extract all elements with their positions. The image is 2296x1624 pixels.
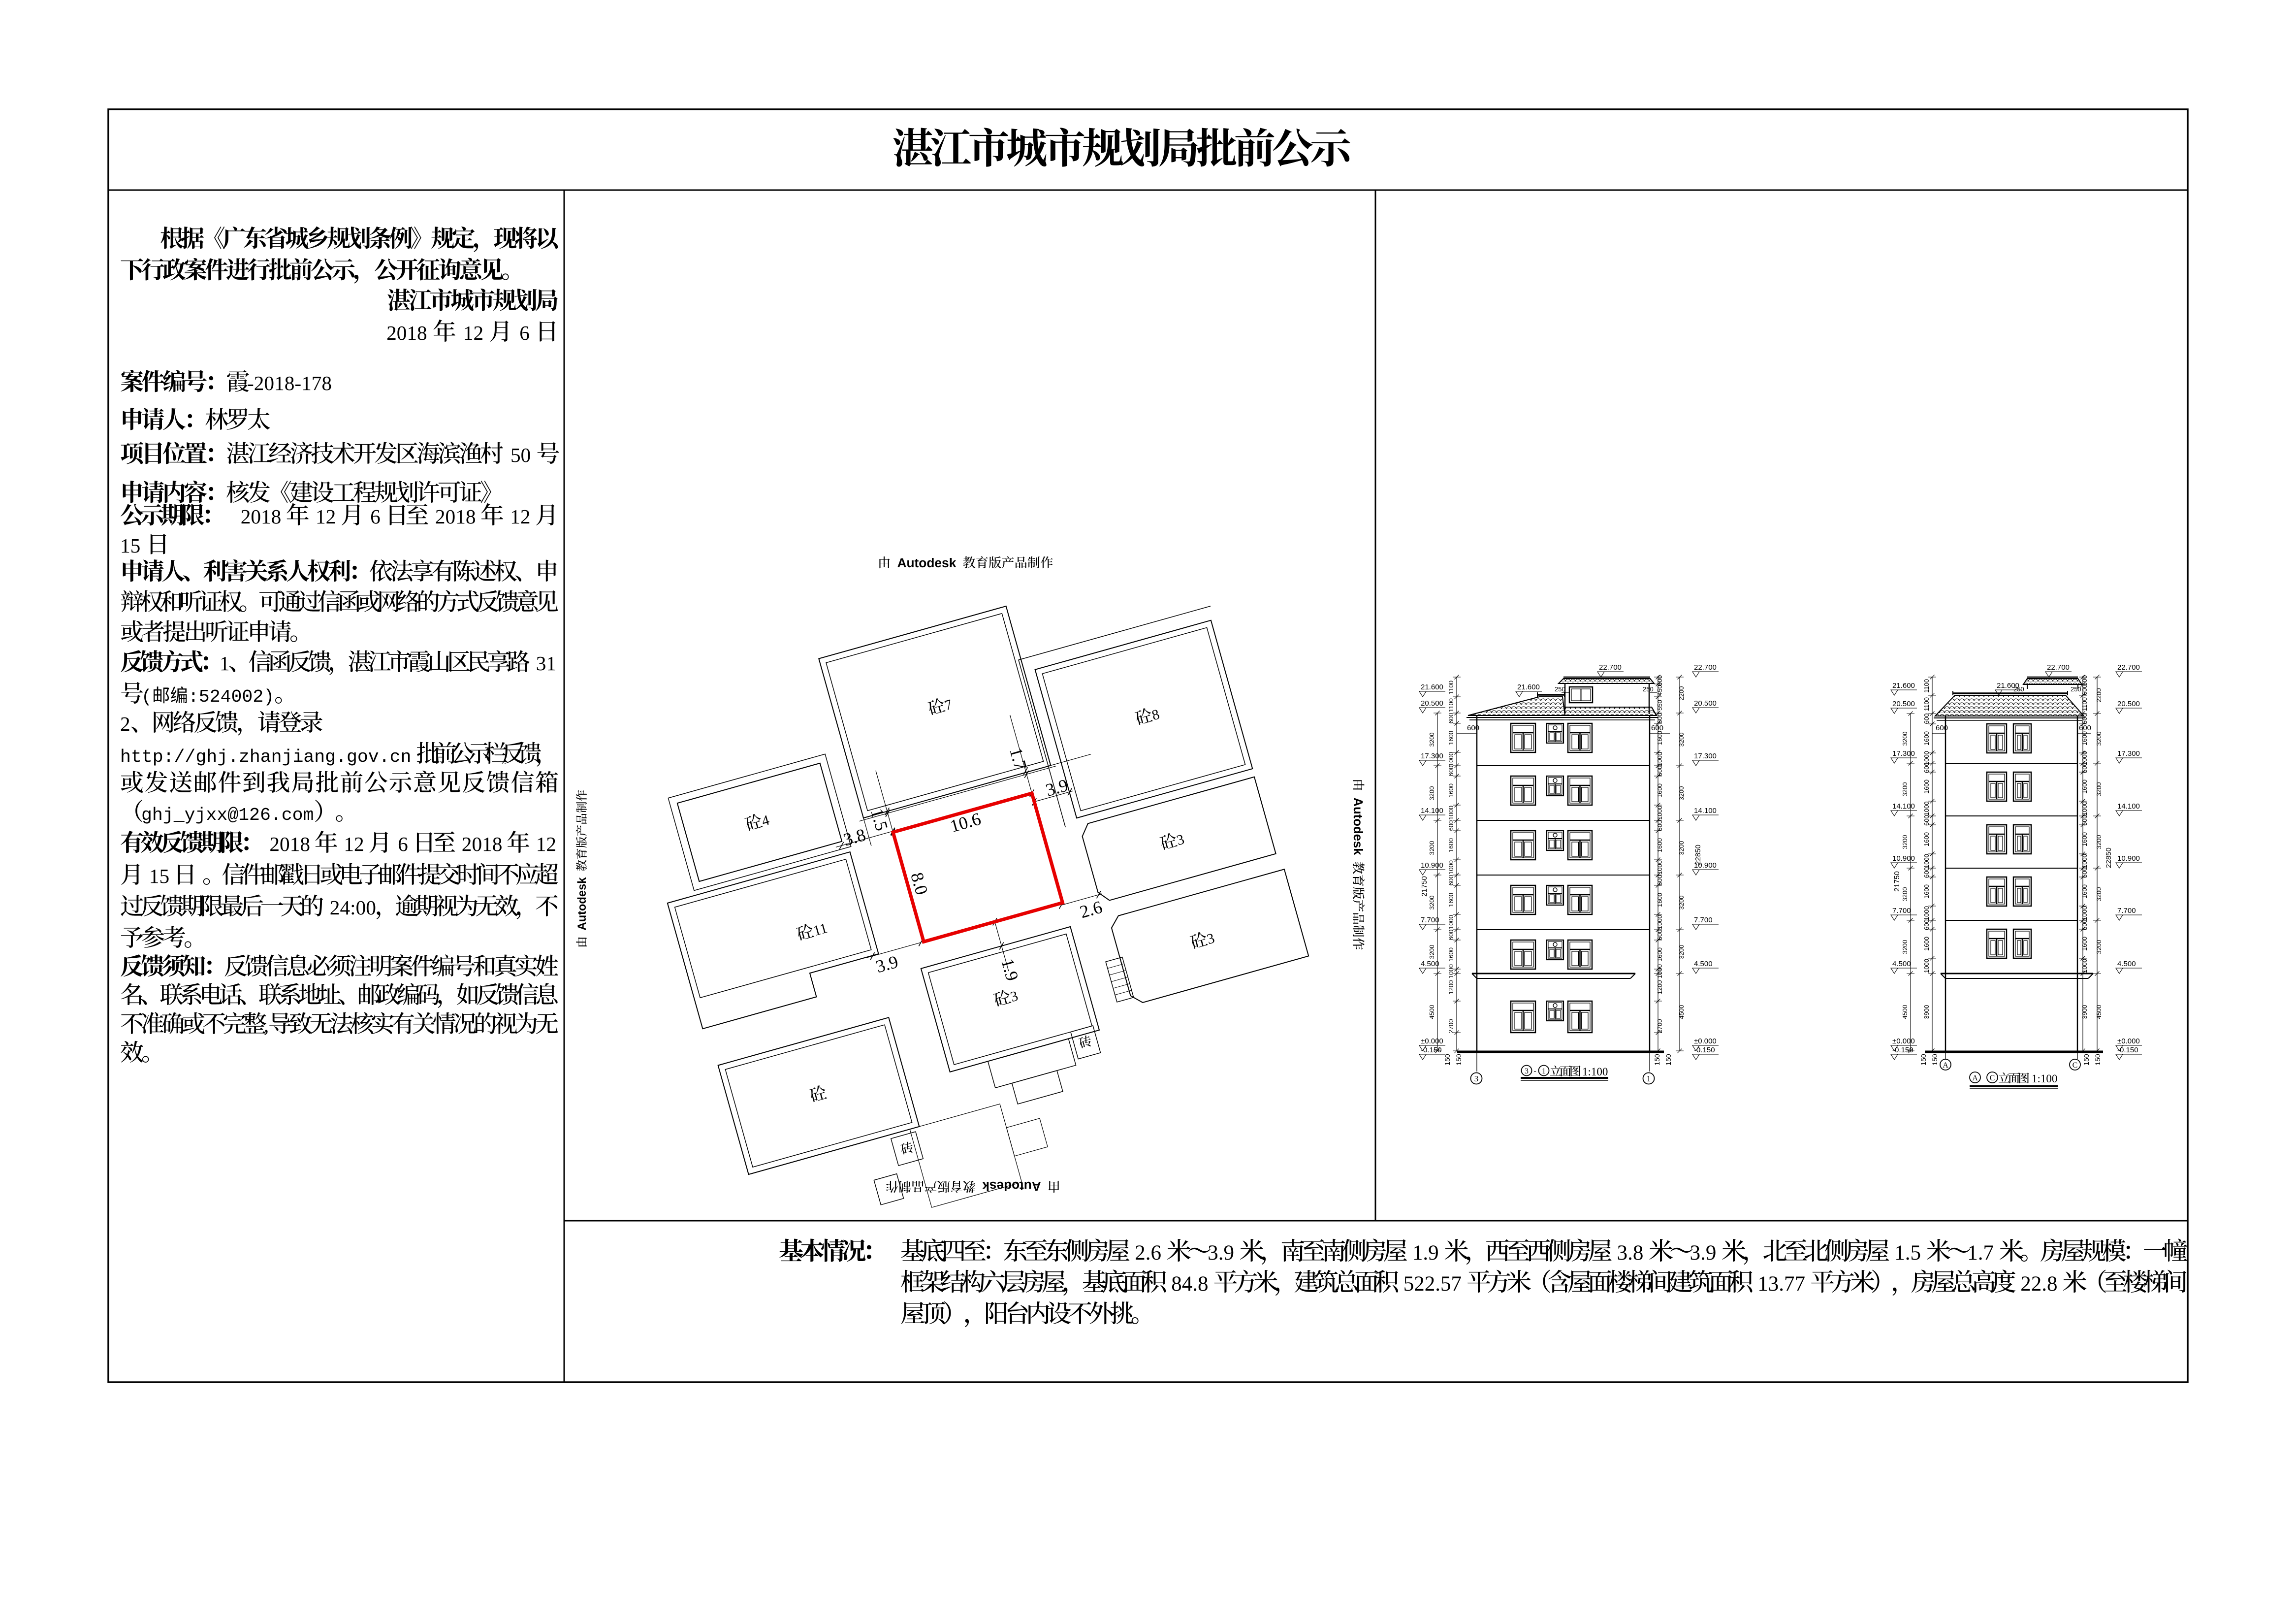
svg-text:24:00: 24:00 bbox=[330, 896, 376, 919]
svg-text:17.300: 17.300 bbox=[2117, 749, 2140, 758]
svg-text:3200: 3200 bbox=[1901, 835, 1909, 849]
svg-text:1600: 1600 bbox=[2081, 832, 2088, 846]
svg-text:3.9: 3.9 bbox=[1208, 1241, 1234, 1265]
svg-text:3200: 3200 bbox=[2095, 940, 2103, 954]
svg-text:1600: 1600 bbox=[1447, 893, 1455, 907]
svg-text:3200: 3200 bbox=[1901, 732, 1909, 746]
svg-text:600: 600 bbox=[1936, 724, 1948, 732]
svg-text:7.700: 7.700 bbox=[1421, 916, 1439, 924]
svg-text:250: 250 bbox=[1643, 685, 1654, 693]
svg-text:12: 12 bbox=[536, 833, 556, 855]
svg-text:21.600: 21.600 bbox=[1997, 682, 2019, 690]
svg-text:3200: 3200 bbox=[1428, 733, 1435, 747]
svg-text:600: 600 bbox=[1656, 930, 1663, 941]
svg-text:4500: 4500 bbox=[1428, 1005, 1435, 1019]
svg-text:600: 600 bbox=[2081, 714, 2088, 724]
svg-text:1100: 1100 bbox=[1447, 681, 1455, 694]
svg-text:14.100: 14.100 bbox=[1421, 807, 1443, 815]
svg-text:1600: 1600 bbox=[1923, 731, 1930, 746]
svg-text:600: 600 bbox=[1447, 766, 1455, 777]
svg-text:7.700: 7.700 bbox=[1694, 916, 1713, 924]
svg-text:522.57: 522.57 bbox=[1403, 1272, 1462, 1296]
svg-text:3200: 3200 bbox=[2095, 887, 2103, 902]
svg-text:3900: 3900 bbox=[2081, 1005, 2088, 1019]
svg-text:3200: 3200 bbox=[2095, 732, 2103, 746]
svg-text:600: 600 bbox=[1447, 713, 1455, 724]
svg-text:22850: 22850 bbox=[1694, 844, 1702, 865]
svg-text:Autodesk: Autodesk bbox=[982, 1179, 1041, 1194]
svg-text:3200: 3200 bbox=[1901, 887, 1909, 902]
svg-text:C: C bbox=[1990, 1074, 1995, 1082]
svg-text:1600: 1600 bbox=[1447, 838, 1455, 852]
svg-text:17.300: 17.300 bbox=[1421, 752, 1443, 760]
svg-text:±0.000: ±0.000 bbox=[1694, 1037, 1717, 1045]
svg-text:1600: 1600 bbox=[1447, 947, 1455, 962]
svg-text:2200: 2200 bbox=[1678, 686, 1685, 701]
svg-text:250: 250 bbox=[1555, 685, 1565, 693]
svg-text:-: - bbox=[1533, 1067, 1536, 1075]
svg-text:22.700: 22.700 bbox=[1694, 663, 1717, 672]
svg-text:1: 1 bbox=[1647, 1074, 1651, 1083]
svg-text:21.600: 21.600 bbox=[1517, 683, 1540, 691]
svg-text:1000: 1000 bbox=[1923, 959, 1930, 973]
svg-text:14.100: 14.100 bbox=[2117, 802, 2140, 811]
svg-text:3.9: 3.9 bbox=[1690, 1241, 1717, 1265]
svg-text:20.500: 20.500 bbox=[2117, 700, 2140, 708]
svg-text:1000: 1000 bbox=[2081, 906, 2088, 920]
svg-text:1000: 1000 bbox=[1447, 915, 1455, 929]
svg-text:1000: 1000 bbox=[2081, 959, 2088, 973]
svg-text:1:100: 1:100 bbox=[1582, 1066, 1608, 1078]
svg-text:600: 600 bbox=[1651, 724, 1663, 732]
svg-text:1000: 1000 bbox=[1923, 802, 1930, 816]
svg-text:600: 600 bbox=[1447, 875, 1455, 886]
svg-text:1000: 1000 bbox=[1656, 752, 1663, 766]
svg-text:600: 600 bbox=[2081, 684, 2088, 695]
svg-text:1000: 1000 bbox=[1923, 854, 1930, 868]
svg-text:3900: 3900 bbox=[1923, 1005, 1930, 1019]
svg-text:600: 600 bbox=[2081, 815, 2088, 826]
svg-text:1600: 1600 bbox=[1447, 783, 1455, 798]
svg-text:±0.000: ±0.000 bbox=[2117, 1037, 2140, 1045]
svg-text:600: 600 bbox=[1923, 762, 1930, 773]
svg-text:1000: 1000 bbox=[1923, 906, 1930, 920]
svg-text:10.900: 10.900 bbox=[2117, 854, 2140, 863]
svg-text:17.300: 17.300 bbox=[1694, 752, 1717, 760]
svg-text:3: 3 bbox=[1525, 1067, 1529, 1075]
svg-text:22850: 22850 bbox=[2105, 847, 2113, 868]
svg-text:1200: 1200 bbox=[1447, 980, 1455, 995]
svg-text:20.500: 20.500 bbox=[1892, 700, 1915, 708]
svg-text:450: 450 bbox=[1656, 685, 1663, 696]
svg-text:3200: 3200 bbox=[1428, 841, 1435, 855]
svg-text:1000: 1000 bbox=[1656, 915, 1663, 929]
svg-text:http://ghj.zhanjiang.gov.cn: http://ghj.zhanjiang.gov.cn bbox=[120, 747, 411, 767]
svg-text:1000: 1000 bbox=[1447, 964, 1455, 978]
svg-text:12: 12 bbox=[463, 322, 483, 344]
svg-text:1100: 1100 bbox=[2081, 697, 2088, 711]
svg-text:22.700: 22.700 bbox=[2117, 663, 2140, 672]
svg-text:-0.150: -0.150 bbox=[2117, 1046, 2138, 1054]
svg-text:600: 600 bbox=[1923, 867, 1930, 878]
svg-text:4500: 4500 bbox=[1678, 1005, 1685, 1019]
svg-text:3200: 3200 bbox=[1428, 945, 1435, 959]
svg-text:150: 150 bbox=[2094, 1054, 2102, 1066]
svg-text:1000: 1000 bbox=[1656, 806, 1663, 820]
svg-text:3200: 3200 bbox=[2095, 782, 2103, 797]
svg-text:14.100: 14.100 bbox=[1694, 807, 1717, 815]
svg-text:1200: 1200 bbox=[1656, 980, 1663, 995]
svg-text:3200: 3200 bbox=[1678, 945, 1685, 959]
svg-text:1000: 1000 bbox=[1656, 964, 1663, 978]
svg-text:7.700: 7.700 bbox=[1892, 907, 1911, 915]
svg-text:1.5: 1.5 bbox=[1894, 1241, 1921, 1265]
svg-text:150: 150 bbox=[1653, 1054, 1661, 1066]
svg-text:150: 150 bbox=[2082, 1054, 2090, 1066]
svg-text:21750: 21750 bbox=[1420, 876, 1429, 897]
svg-text:20.500: 20.500 bbox=[1694, 699, 1717, 708]
svg-text:1.7: 1.7 bbox=[1967, 1241, 1994, 1265]
svg-text:50: 50 bbox=[510, 444, 531, 466]
svg-text:1000: 1000 bbox=[1447, 752, 1455, 766]
svg-text:10.900: 10.900 bbox=[1892, 854, 1915, 863]
svg-text:2018: 2018 bbox=[435, 505, 476, 528]
svg-text:600: 600 bbox=[1923, 919, 1930, 930]
svg-text:1600: 1600 bbox=[1656, 947, 1663, 962]
svg-text:-2018-178: -2018-178 bbox=[247, 372, 332, 394]
svg-text:1600: 1600 bbox=[1447, 731, 1455, 745]
svg-text:2018: 2018 bbox=[241, 505, 282, 528]
svg-text:7.700: 7.700 bbox=[2117, 907, 2136, 915]
svg-text:6: 6 bbox=[398, 833, 408, 855]
svg-text:1600: 1600 bbox=[1923, 832, 1930, 846]
svg-text:A: A bbox=[1943, 1061, 1948, 1070]
svg-text:3200: 3200 bbox=[1428, 786, 1435, 801]
svg-text:12: 12 bbox=[510, 505, 530, 528]
svg-text:2018: 2018 bbox=[462, 833, 503, 855]
svg-text:1000: 1000 bbox=[2081, 802, 2088, 816]
svg-text:21.600: 21.600 bbox=[1892, 682, 1915, 690]
svg-text:1000: 1000 bbox=[1447, 860, 1455, 875]
svg-text:6: 6 bbox=[519, 322, 530, 344]
svg-text:20.500: 20.500 bbox=[1421, 699, 1443, 708]
svg-text:600: 600 bbox=[2081, 675, 2088, 686]
svg-text:3200: 3200 bbox=[1901, 940, 1909, 954]
svg-text:4500: 4500 bbox=[2095, 1005, 2103, 1019]
svg-text:84.8: 84.8 bbox=[1171, 1272, 1208, 1296]
svg-text:10.900: 10.900 bbox=[1421, 861, 1443, 870]
svg-text:600: 600 bbox=[2081, 762, 2088, 773]
svg-text:4.500: 4.500 bbox=[1694, 960, 1713, 968]
svg-text:1000: 1000 bbox=[2081, 854, 2088, 868]
svg-text:250: 250 bbox=[2071, 685, 2081, 693]
svg-text:2.6: 2.6 bbox=[1135, 1241, 1161, 1265]
svg-text:600: 600 bbox=[1447, 930, 1455, 941]
svg-text:1: 1 bbox=[1542, 1067, 1546, 1075]
svg-text:3200: 3200 bbox=[2095, 835, 2103, 849]
svg-text:4.500: 4.500 bbox=[2117, 960, 2136, 968]
svg-text:1600: 1600 bbox=[2081, 937, 2088, 951]
svg-text:550: 550 bbox=[1656, 700, 1663, 711]
svg-text:1600: 1600 bbox=[1656, 893, 1663, 907]
svg-text:2018: 2018 bbox=[269, 833, 310, 855]
svg-text:1: 1 bbox=[220, 652, 230, 675]
svg-text:1000: 1000 bbox=[1656, 860, 1663, 875]
svg-text:3200: 3200 bbox=[1901, 782, 1909, 797]
svg-text:4.500: 4.500 bbox=[1892, 960, 1911, 968]
svg-text:15: 15 bbox=[149, 865, 169, 887]
svg-text:1600: 1600 bbox=[1656, 838, 1663, 852]
svg-text:6: 6 bbox=[370, 505, 381, 528]
svg-text:600: 600 bbox=[1656, 875, 1663, 886]
svg-text:15: 15 bbox=[120, 534, 140, 557]
svg-text:-0.150: -0.150 bbox=[1694, 1046, 1715, 1054]
svg-text:22.700: 22.700 bbox=[2047, 663, 2070, 672]
svg-text:3: 3 bbox=[1474, 1074, 1479, 1083]
svg-text:600: 600 bbox=[1656, 713, 1663, 724]
svg-text:4500: 4500 bbox=[1901, 1005, 1909, 1019]
svg-text:150: 150 bbox=[1931, 1054, 1939, 1066]
svg-text:600: 600 bbox=[1923, 714, 1930, 724]
svg-text:2700: 2700 bbox=[1656, 1019, 1663, 1034]
svg-text:,: , bbox=[264, 1014, 269, 1037]
svg-text:Autodesk: Autodesk bbox=[897, 555, 957, 570]
svg-text:1600: 1600 bbox=[2081, 884, 2088, 899]
svg-text:1600: 1600 bbox=[1923, 937, 1930, 951]
svg-text:600: 600 bbox=[1467, 724, 1479, 732]
svg-text:C: C bbox=[2073, 1061, 2078, 1070]
svg-text:3200: 3200 bbox=[1428, 896, 1435, 910]
svg-text:22.700: 22.700 bbox=[1599, 663, 1622, 672]
svg-text:(邮编:524002): (邮编:524002) bbox=[141, 686, 274, 707]
svg-text:1100: 1100 bbox=[1923, 679, 1930, 693]
svg-text:A: A bbox=[1972, 1074, 1978, 1082]
svg-text:150: 150 bbox=[1664, 1054, 1672, 1066]
svg-text:3200: 3200 bbox=[1678, 786, 1685, 801]
svg-text:150: 150 bbox=[1455, 1054, 1463, 1066]
svg-text:Autodesk: Autodesk bbox=[1351, 798, 1365, 856]
svg-text:150: 150 bbox=[1919, 1054, 1927, 1066]
svg-text:21750: 21750 bbox=[1893, 871, 1901, 892]
svg-text:1600: 1600 bbox=[1656, 783, 1663, 798]
svg-text:1600: 1600 bbox=[2081, 780, 2088, 794]
svg-text:1:100: 1:100 bbox=[2032, 1072, 2057, 1085]
svg-text:3200: 3200 bbox=[1678, 733, 1685, 747]
svg-text:1000: 1000 bbox=[1447, 806, 1455, 820]
svg-text:600: 600 bbox=[1656, 820, 1663, 831]
svg-text:13.77: 13.77 bbox=[1757, 1272, 1805, 1296]
svg-text:3200: 3200 bbox=[1678, 841, 1685, 855]
svg-text:3.8: 3.8 bbox=[1617, 1241, 1644, 1265]
svg-text:1100: 1100 bbox=[1923, 697, 1930, 711]
svg-text:±0.000: ±0.000 bbox=[1421, 1037, 1443, 1045]
svg-text:22.8: 22.8 bbox=[2020, 1272, 2057, 1296]
svg-text:21.600: 21.600 bbox=[1421, 683, 1443, 691]
svg-text:600: 600 bbox=[1923, 815, 1930, 826]
svg-text:1600: 1600 bbox=[1656, 731, 1663, 745]
svg-text:2: 2 bbox=[120, 713, 130, 735]
svg-text:1600: 1600 bbox=[1923, 884, 1930, 899]
svg-text:2700: 2700 bbox=[1447, 1019, 1455, 1034]
svg-text:12: 12 bbox=[316, 505, 336, 528]
svg-text:600: 600 bbox=[2079, 724, 2091, 732]
svg-text:150: 150 bbox=[1443, 1054, 1451, 1066]
svg-text:12: 12 bbox=[344, 833, 364, 855]
svg-text:1600: 1600 bbox=[2081, 731, 2088, 746]
svg-text:ghj_yjxx@126.com: ghj_yjxx@126.com bbox=[141, 805, 314, 825]
svg-text:17.300: 17.300 bbox=[1892, 749, 1915, 758]
svg-text:-0.150: -0.150 bbox=[1892, 1046, 1913, 1054]
svg-text:±0.000: ±0.000 bbox=[1892, 1037, 1915, 1045]
svg-text:2200: 2200 bbox=[2095, 688, 2103, 703]
svg-text:600: 600 bbox=[1447, 820, 1455, 831]
svg-text:1.9: 1.9 bbox=[1412, 1241, 1439, 1265]
svg-text:Autodesk: Autodesk bbox=[576, 877, 589, 931]
svg-text:14.100: 14.100 bbox=[1892, 802, 1915, 811]
svg-text:1600: 1600 bbox=[1923, 780, 1930, 794]
svg-text:600: 600 bbox=[2081, 919, 2088, 930]
svg-text:31: 31 bbox=[536, 652, 556, 675]
svg-text:600: 600 bbox=[1656, 766, 1663, 777]
svg-text:600: 600 bbox=[2081, 867, 2088, 878]
svg-text:2018: 2018 bbox=[386, 322, 427, 344]
svg-text:600: 600 bbox=[1656, 675, 1663, 686]
svg-text:4.500: 4.500 bbox=[1421, 960, 1439, 968]
svg-text:3200: 3200 bbox=[1678, 896, 1685, 910]
svg-text:1100: 1100 bbox=[1447, 698, 1455, 712]
